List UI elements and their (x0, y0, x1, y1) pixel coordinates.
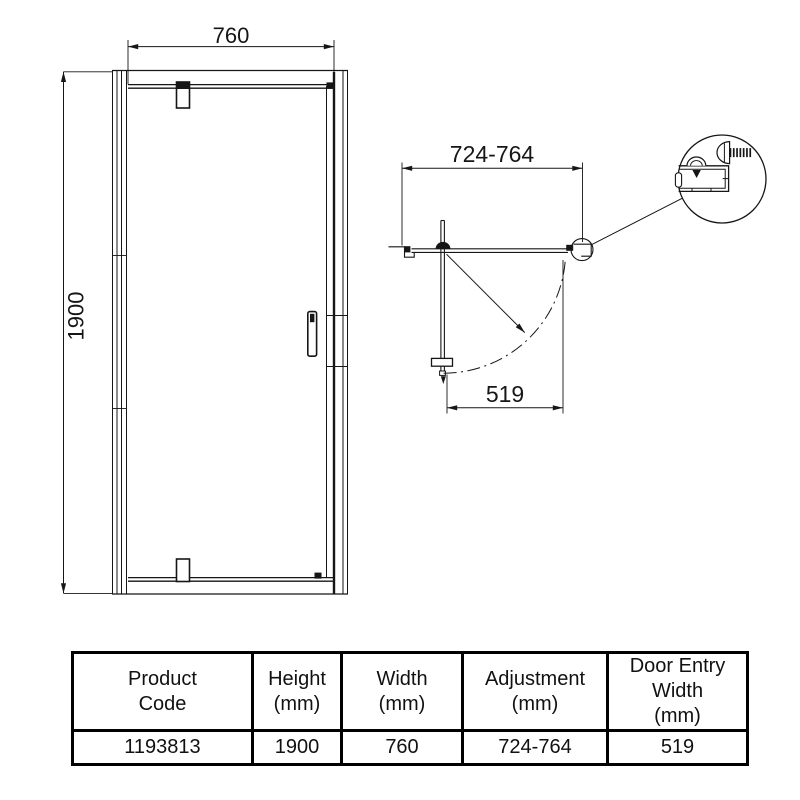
header-line: (mm) (609, 704, 746, 729)
specification-table: Product Code Height (mm) Width (mm) Adju… (71, 651, 749, 766)
header-line: Adjustment (464, 667, 606, 692)
shower-door-technical-drawing: 760 1900 724-764 (0, 0, 800, 800)
dimension-width-760: 760 (128, 23, 334, 84)
closed-door-panel-plan (412, 249, 569, 253)
top-pivot-hinge (177, 82, 190, 108)
spec-table-value-row: 1193813 1900 760 724-764 519 (73, 731, 748, 765)
header-product-code: Product Code (73, 653, 253, 731)
dimension-label-adjustment: 724-764 (450, 141, 535, 167)
value-width: 760 (342, 731, 463, 765)
header-line: (mm) (254, 692, 340, 717)
door-handle (308, 312, 317, 357)
fixing-screw (717, 142, 752, 164)
header-line: Door Entry (609, 654, 746, 679)
top-rail (128, 85, 334, 89)
dimension-label-width: 760 (213, 23, 250, 48)
left-wall-profile (113, 70, 127, 594)
header-adjustment: Adjustment (mm) (463, 653, 608, 731)
spec-table: Product Code Height (mm) Width (mm) Adju… (71, 651, 749, 766)
dimension-label-door-entry: 519 (486, 381, 524, 407)
wall-profile-detail-view (675, 135, 766, 223)
header-line: Height (254, 667, 340, 692)
right-wall-profile (327, 70, 348, 594)
bottom-pivot-hinge (177, 559, 190, 582)
header-line: Code (74, 692, 251, 717)
header-line: (mm) (343, 692, 461, 717)
header-line: Width (609, 679, 746, 704)
bottom-right-corner-block (315, 573, 322, 579)
dimension-adjustment-724-764: 724-764 (402, 141, 583, 246)
value-adjustment: 724-764 (463, 731, 608, 765)
bottom-rail (128, 578, 334, 582)
top-right-corner-block (327, 82, 335, 88)
dimension-label-height: 1900 (64, 292, 89, 341)
dimension-height-1900: 1900 (64, 72, 113, 594)
drawing-canvas: 760 1900 724-764 (0, 0, 800, 632)
adjustment-arrow (692, 170, 700, 178)
pivot-point (436, 242, 451, 249)
spec-table-header-row: Product Code Height (mm) Width (mm) Adju… (73, 653, 748, 731)
detail-callout-circle (571, 239, 593, 261)
header-line: (mm) (464, 692, 606, 717)
value-door-entry-width: 519 (608, 731, 748, 765)
dimension-door-entry-519: 519 (447, 260, 563, 414)
profile-clip (675, 173, 681, 187)
door-handle-plan (432, 358, 453, 366)
value-product-code: 1193813 (73, 731, 253, 765)
door-swing-arc (444, 260, 566, 373)
header-line: Width (343, 667, 461, 692)
front-elevation-view: 760 1900 (64, 23, 349, 594)
plan-view: 724-764 (389, 141, 683, 414)
header-height: Height (mm) (253, 653, 342, 731)
swing-radius-arrow (447, 254, 525, 332)
wall-profile-cross-section (675, 157, 728, 191)
header-width: Width (mm) (342, 653, 463, 731)
door-tip-point (441, 376, 446, 384)
screw-head (717, 142, 730, 164)
left-wall-bracket-plan (389, 246, 415, 257)
value-height: 1900 (253, 731, 342, 765)
detail-leader-line (592, 198, 683, 244)
right-wall-bracket-plan (566, 244, 591, 256)
header-line: Product (74, 667, 251, 692)
header-door-entry-width: Door Entry Width (mm) (608, 653, 748, 731)
profile-dome (687, 157, 706, 166)
